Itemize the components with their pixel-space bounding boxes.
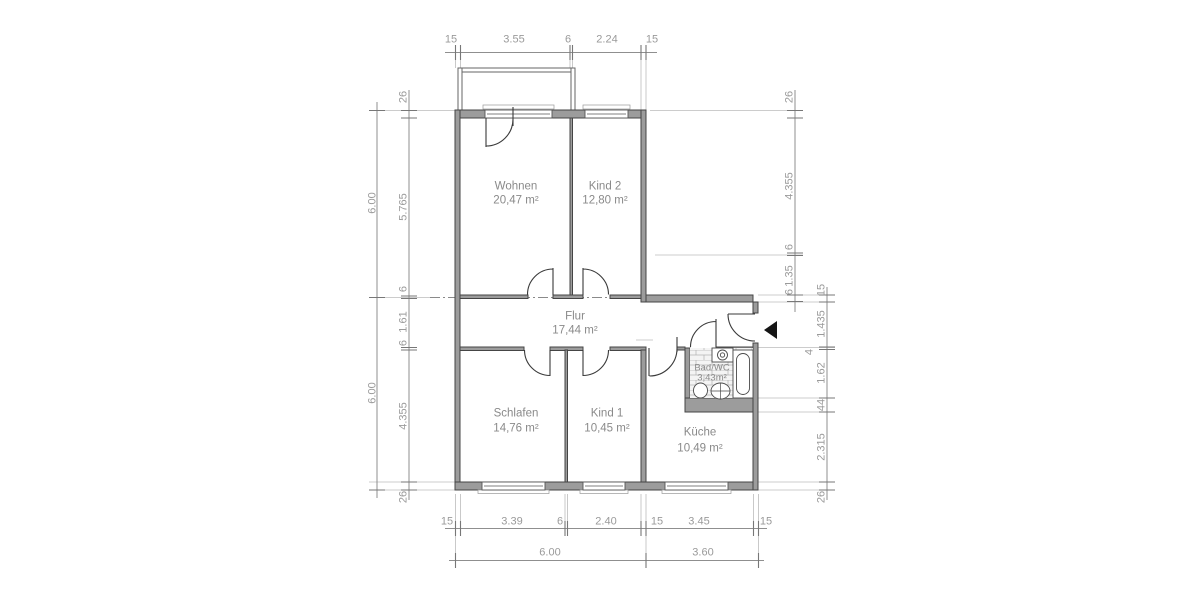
room-label-wohnen: Wohnen [495,181,538,193]
dim-left-inner-3: 1.61 [399,311,410,332]
room-label-kueche: Küche [684,427,717,439]
wall-flur-top-c [610,295,641,299]
room-label-schlafen: Schlafen [494,408,539,420]
door-schlafen [525,350,551,376]
dim-right1-0: 26 [785,91,796,103]
sill-kind2 [583,105,630,109]
toilet [694,383,708,398]
floor-plan-canvas: Wohnen 20,47 m² Kind 2 12,80 m² Flur 17,… [0,0,1200,600]
door-kind1 [583,350,609,376]
wall-east-upper [641,110,646,302]
sill-schlafen [478,490,549,494]
wall-bad-top-a [677,347,685,350]
wall-bad-kueche [685,398,753,412]
dim-right2-0: 15 [817,284,828,296]
room-area-schlafen: 14,76 m² [493,423,538,435]
dim-left-inner-1: 5.765 [399,193,410,221]
room-label-kind2: Kind 2 [589,181,622,193]
dim-right2-6: 26 [817,491,828,503]
sill-kueche [662,490,731,494]
door-kind2 [583,268,609,295]
doors [486,107,755,376]
dim-left-outer-1: 6.00 [368,382,379,403]
dim-bottom-1: 3.39 [501,517,522,528]
bathtub [733,350,753,398]
dim-bottom-4: 15 [651,517,663,528]
room-label-kind1: Kind 1 [591,408,624,420]
wall-schlafen-kind1 [565,350,568,482]
wall-flur-top-b [553,295,583,299]
dim-top-1: 3.55 [503,35,524,46]
dim-overall-1: 3.60 [692,548,713,559]
dim-left-inner-4: 6 [399,340,410,346]
wall-left [455,110,460,490]
dim-right2-1: 1.435 [817,310,828,338]
dim-right2-2: 4 [805,349,816,355]
dim-top-2: 6 [565,35,571,46]
dim-top-3: 2.24 [596,35,617,46]
room-area-kueche: 10,49 m² [677,443,722,455]
wall-kind1-kueche [641,350,646,482]
dim-bottom-0: 15 [441,517,453,528]
dim-bottom-3: 2.40 [595,517,616,528]
floor-plan-drawing [0,0,1200,600]
dim-right1-3: 1.35 [785,265,796,286]
balcony [458,68,575,110]
dim-left-inner-2: 6 [399,286,410,292]
door-wohnen [528,268,554,295]
dim-right2-3: 1.62 [817,362,828,383]
dim-top-4: 15 [646,35,658,46]
sill-kind1 [580,490,628,494]
dim-bottom-2: 6 [557,517,563,528]
dim-overall-0: 6.00 [539,548,560,559]
door-kueche [649,337,677,376]
sill-wohnen [483,105,554,109]
dim-bottom-6: 15 [760,517,772,528]
dim-left-inner-0: 26 [399,91,410,103]
wall-wohnen-kind2 [570,118,573,295]
dim-right1-2: 6 [785,244,796,250]
dim-top-0: 15 [445,35,457,46]
dim-right2-4: 44 [817,399,828,411]
wall-right-lower [753,343,758,490]
door-entrance [728,314,755,341]
wall-flur-top-a [460,295,528,299]
wall-right-upper-stub [753,302,758,313]
dim-left-inner-5: 4.355 [399,402,410,430]
wall-flur-bottom-a [460,347,524,351]
room-area-badwc: 3,43m² [697,373,727,383]
dim-right1-4: 6 [785,289,796,295]
dim-left-outer-0: 6.00 [368,192,379,213]
dim-left-inner-6: 26 [399,491,410,503]
room-label-flur: Flur [565,311,585,323]
room-area-flur: 17,44 m² [552,325,597,337]
dim-right2-5: 2.315 [817,433,828,461]
room-area-kind1: 10,45 m² [584,423,629,435]
entrance-arrow-icon [764,321,777,339]
room-area-kind2: 12,80 m² [582,195,627,207]
door-bad [691,319,717,347]
dim-right1-1: 4.355 [785,172,796,200]
dim-bottom-5: 3.45 [688,517,709,528]
room-area-wohnen: 20,47 m² [493,195,538,207]
wall-flur-top-right [646,295,753,302]
